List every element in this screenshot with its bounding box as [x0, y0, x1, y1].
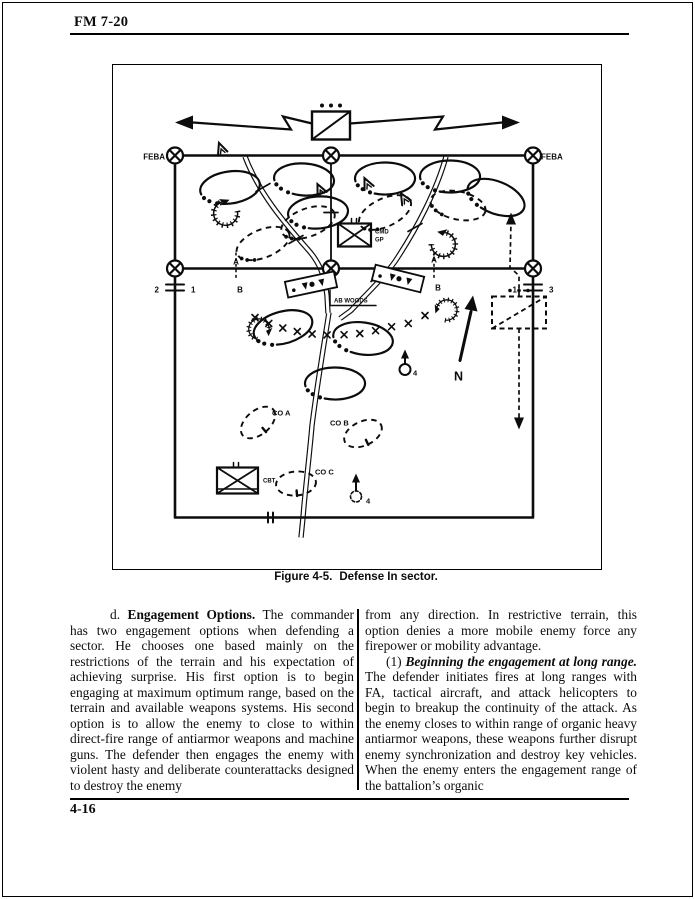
- co-b-bdry-label: B: [237, 286, 243, 295]
- footer-rule: [70, 798, 629, 800]
- company-ab-boundary-right: A B: [431, 253, 441, 293]
- page-number: 4-16: [70, 802, 96, 818]
- unit-3-label: 3: [549, 286, 554, 295]
- enemy-unit-symbol: [175, 104, 520, 140]
- reserve-unit-symbol: [492, 213, 546, 430]
- figure-caption-text: Defense In sector.: [339, 571, 437, 583]
- unit-1b-label: 1: [513, 286, 518, 295]
- combat-trains-symbol: CBT: [217, 463, 276, 494]
- cp-lower-label: 4: [366, 497, 371, 506]
- co-c-label: CO C: [315, 468, 334, 477]
- feba-label-left: FEBA: [143, 153, 165, 162]
- command-group-symbol: CMD GP: [338, 219, 389, 247]
- unit-2-label: 2: [155, 286, 160, 295]
- para2-prefix: (1): [386, 654, 405, 669]
- contact-point-upper: 4: [400, 350, 419, 378]
- co-b-bdry-label-r: B: [435, 284, 441, 293]
- figure-caption: Figure 4-5.Defense In sector.: [112, 571, 600, 583]
- para-body-text: The commander has two engagement options…: [70, 607, 354, 793]
- ab-woods-label: AB WOODS: [334, 299, 368, 305]
- para2-lead-bold-italic: Beginning the engagement at long range.: [405, 654, 637, 669]
- cp-upper-label: 4: [413, 369, 418, 378]
- feba-label-right: FEBA: [541, 153, 563, 162]
- column-divider-rule: [357, 609, 359, 790]
- para-lead-bold: Engagement Options.: [128, 607, 256, 622]
- defense-in-sector-diagram: FEBA FEBA 2 1 1 3 A B A B: [113, 65, 601, 569]
- gp-label: GP: [375, 238, 384, 244]
- paragraph-continuation: from any direction. In restrictive terra…: [365, 607, 637, 654]
- para2-body-text: The defender initiates fires at long ran…: [365, 669, 637, 793]
- forward-positions: [198, 160, 530, 399]
- cbt-label: CBT: [263, 479, 276, 485]
- contact-point-lower: 4: [351, 474, 372, 506]
- center-company-boundary: [324, 165, 338, 260]
- header-rule: [70, 33, 629, 35]
- body-column-right: from any direction. In restrictive terra…: [365, 607, 637, 793]
- body-column-left: d. Engagement Options. The commander has…: [70, 607, 354, 793]
- co-a-label: CO A: [272, 409, 291, 418]
- document-id: FM 7-20: [74, 14, 128, 31]
- paragraph-long-range: (1) Beginning the engagement at long ran…: [365, 654, 637, 794]
- figure-caption-label: Figure 4-5.: [274, 571, 332, 583]
- figure-frame: FEBA FEBA 2 1 1 3 A B A B: [112, 64, 602, 570]
- paragraph-engagement-options: d. Engagement Options. The commander has…: [70, 607, 354, 793]
- north-label: N: [454, 370, 463, 384]
- cmd-label: CMD: [375, 230, 389, 236]
- unit-1-label: 1: [191, 286, 196, 295]
- co-b-label: CO B: [330, 419, 349, 428]
- para-prefix: d.: [110, 607, 128, 622]
